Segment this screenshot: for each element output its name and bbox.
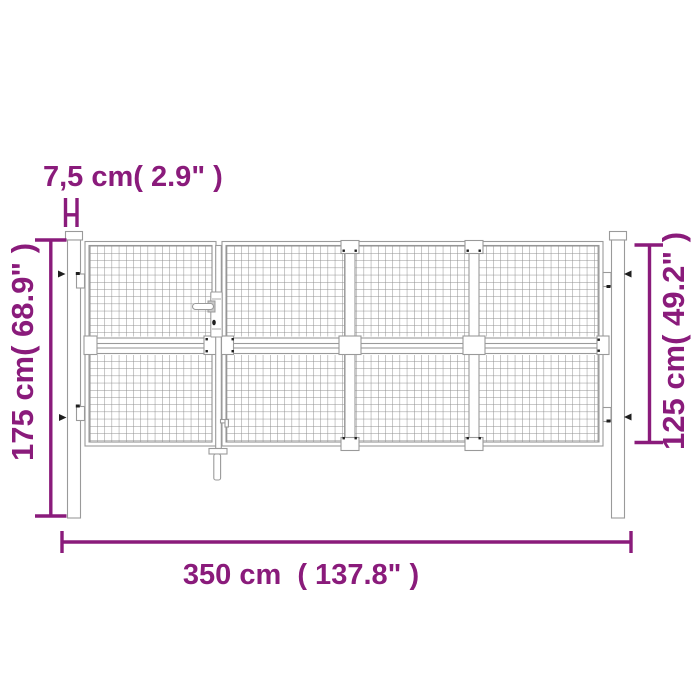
post-height-label: 175 cm( 68.9" ) xyxy=(5,243,40,461)
mesh-panel xyxy=(479,246,598,338)
bolt-dot xyxy=(467,437,469,439)
bolt-dot xyxy=(479,437,481,439)
rail-bracket xyxy=(339,336,361,355)
hinge-bottom-right xyxy=(603,408,611,422)
rail-bracket xyxy=(84,336,97,355)
gate-handle xyxy=(193,304,214,310)
right-post-body xyxy=(612,240,625,518)
hinge-bottom-left xyxy=(77,407,85,421)
bolt-dot xyxy=(343,250,345,252)
hinge-top-left xyxy=(77,274,85,288)
drop-bolt-bracket-tip xyxy=(225,420,228,428)
bolt-dot xyxy=(598,350,600,352)
mesh-panel xyxy=(227,354,345,442)
bolt-dot xyxy=(479,250,481,252)
drop-bolt-plate xyxy=(209,449,227,455)
gate-dimension-diagram: 7,5 cm( 2.9" ) 175 cm( 68.9" ) 125 cm( 4… xyxy=(0,0,700,700)
keyhole xyxy=(212,320,216,326)
bolt-dot xyxy=(232,350,234,352)
bolt-dot xyxy=(206,338,208,340)
leaf-height-label: 125 cm( 49.2" ) xyxy=(656,232,691,450)
hinge-pin-mark xyxy=(607,285,611,288)
latch-bar xyxy=(216,246,222,449)
mesh-panel xyxy=(355,354,469,442)
mesh-panel xyxy=(227,246,345,338)
divider-cap xyxy=(465,438,483,451)
drop-bolt-rod xyxy=(214,454,221,480)
mesh-panel xyxy=(90,246,212,338)
total-width-label: 350 cm ( 137.8" ) xyxy=(183,559,419,591)
right-post-cap xyxy=(610,232,627,241)
divider-cap xyxy=(341,438,359,451)
bolt-dot xyxy=(206,350,208,352)
bolt-dot xyxy=(355,250,357,252)
bolt-dot xyxy=(232,338,234,340)
post-width-label: 7,5 cm( 2.9" ) xyxy=(43,161,223,193)
right-post xyxy=(610,232,627,519)
hinge-pin-mark xyxy=(76,405,80,408)
middle-rail xyxy=(84,336,609,355)
bolt-dot xyxy=(355,437,357,439)
hinge-pin-mark xyxy=(76,272,80,275)
rail-bracket xyxy=(463,336,485,355)
bolt-dot xyxy=(598,339,600,341)
hinge-pin-mark xyxy=(607,420,611,423)
mesh-panel xyxy=(90,354,212,442)
left-post-cap xyxy=(66,232,83,241)
bolt-dot xyxy=(343,437,345,439)
bolt-dot xyxy=(467,250,469,252)
mesh-panel xyxy=(355,246,469,338)
mesh-panel xyxy=(479,354,598,442)
hinge-top-right xyxy=(603,273,611,287)
